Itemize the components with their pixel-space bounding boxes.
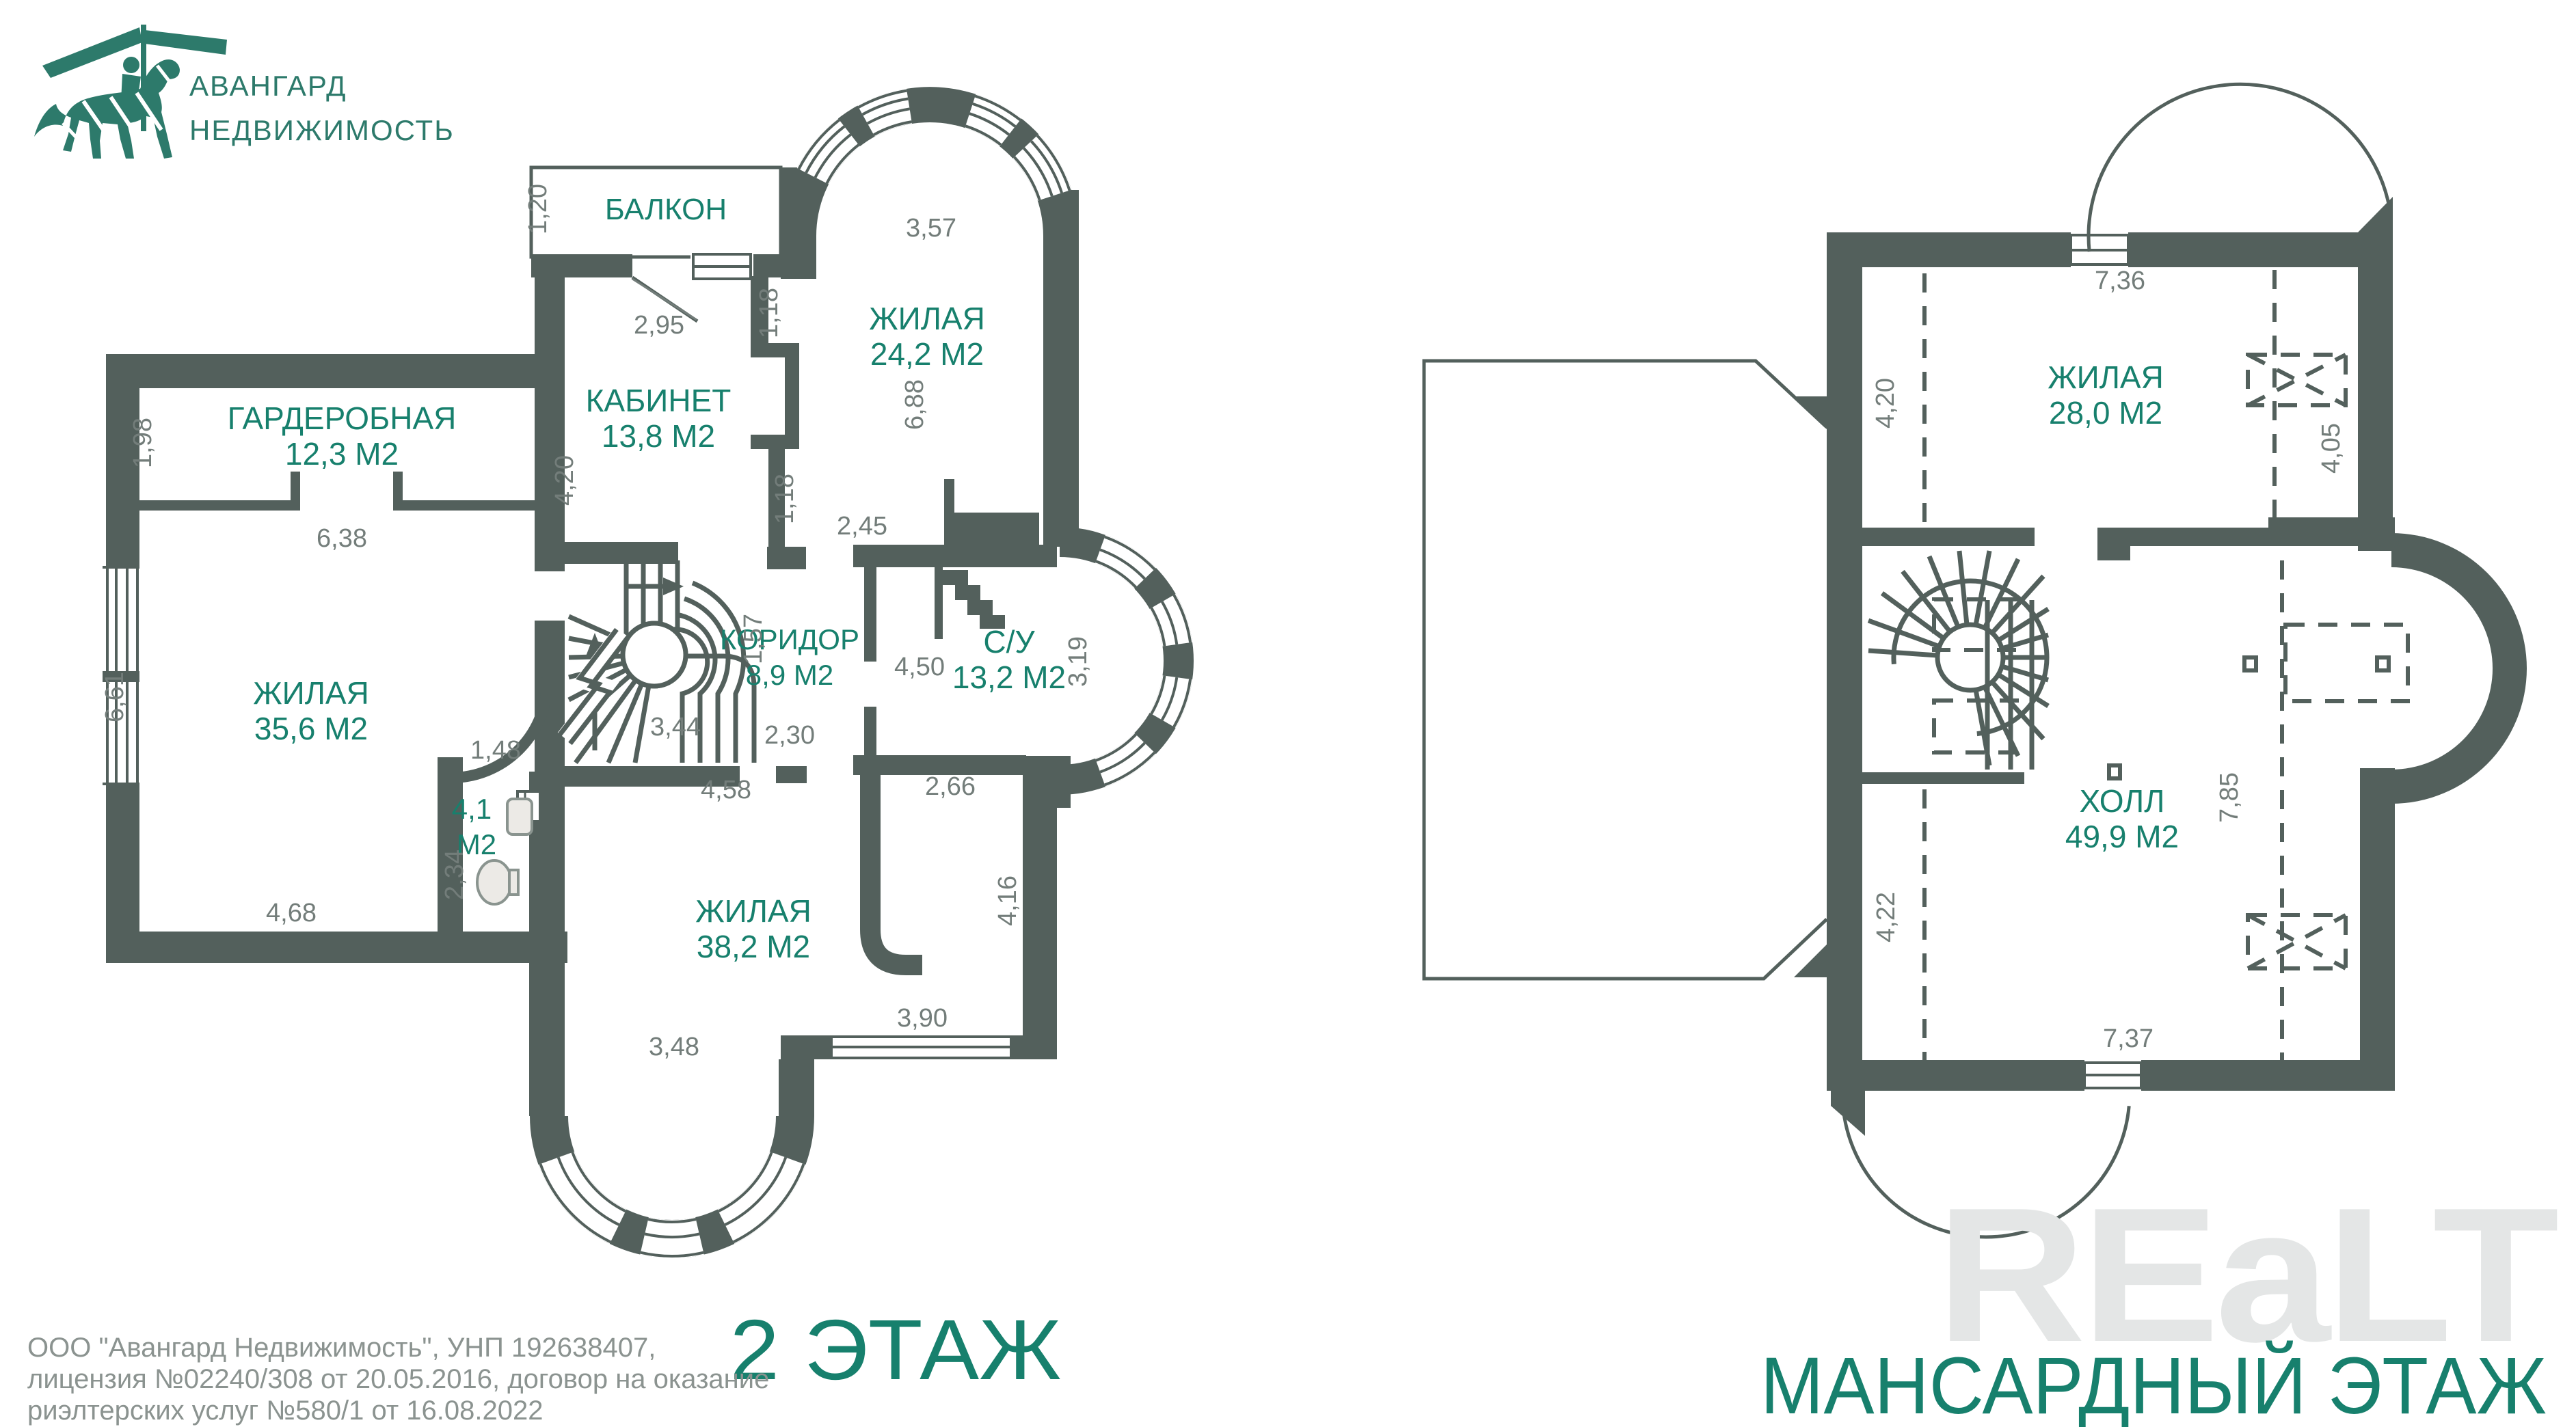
- svg-text:4,05: 4,05: [2317, 423, 2346, 474]
- svg-text:35,6 М2: 35,6 М2: [254, 711, 368, 746]
- svg-text:ЖИЛАЯ: ЖИЛАЯ: [253, 675, 369, 711]
- svg-text:МАНСАРДНЫЙ ЭТАЖ: МАНСАРДНЫЙ ЭТАЖ: [1760, 1340, 2547, 1427]
- svg-text:4,1: 4,1: [452, 793, 492, 825]
- svg-text:1,20: 1,20: [524, 184, 552, 234]
- svg-text:1,18: 1,18: [770, 474, 799, 524]
- svg-text:ЖИЛАЯ: ЖИЛАЯ: [869, 301, 985, 336]
- svg-text:С/У: С/У: [983, 624, 1035, 660]
- svg-text:4,68: 4,68: [266, 899, 317, 927]
- svg-text:3,48: 3,48: [649, 1033, 699, 1061]
- svg-text:ООО "Авангард Недвижимость", У: ООО "Авангард Недвижимость", УНП 1926384…: [27, 1333, 656, 1363]
- svg-text:ЖИЛАЯ: ЖИЛАЯ: [695, 893, 811, 929]
- svg-text:2,95: 2,95: [634, 311, 684, 340]
- svg-text:7,85: 7,85: [2215, 772, 2244, 823]
- svg-text:риэлтерских услуг №580/1 от 16: риэлтерских услуг №580/1 от 16.08.2022: [27, 1396, 544, 1426]
- svg-text:2,45: 2,45: [837, 512, 887, 541]
- svg-text:3,90: 3,90: [897, 1004, 948, 1033]
- svg-text:БАЛКОН: БАЛКОН: [605, 193, 727, 226]
- svg-text:2,66: 2,66: [925, 772, 976, 801]
- svg-text:49,9 М2: 49,9 М2: [2065, 819, 2179, 854]
- svg-text:НЕДВИЖИМОСТЬ: НЕДВИЖИМОСТЬ: [189, 114, 455, 146]
- svg-text:1,57: 1,57: [739, 614, 768, 664]
- svg-text:7,37: 7,37: [2103, 1024, 2154, 1053]
- svg-text:6,88: 6,88: [900, 379, 929, 430]
- svg-text:2,30: 2,30: [764, 721, 815, 750]
- svg-text:ГАРДЕРОБНАЯ: ГАРДЕРОБНАЯ: [228, 400, 457, 436]
- svg-text:ЖИЛАЯ: ЖИЛАЯ: [2048, 359, 2164, 395]
- svg-text:1,98: 1,98: [129, 418, 157, 468]
- svg-text:6,61: 6,61: [100, 672, 129, 722]
- svg-text:АВАНГАРД: АВАНГАРД: [189, 70, 347, 102]
- svg-text:4,20: 4,20: [550, 455, 579, 506]
- svg-text:4,16: 4,16: [993, 875, 1022, 926]
- svg-text:4,50: 4,50: [894, 653, 945, 681]
- svg-text:3,57: 3,57: [906, 214, 956, 243]
- svg-text:1,48: 1,48: [470, 736, 521, 765]
- svg-text:28,0 М2: 28,0 М2: [2049, 395, 2162, 431]
- svg-text:13,2 М2: 13,2 М2: [952, 660, 1066, 695]
- svg-text:4,58: 4,58: [701, 776, 751, 804]
- svg-text:24,2 М2: 24,2 М2: [870, 336, 984, 372]
- svg-text:4,22: 4,22: [1872, 892, 1901, 942]
- svg-text:2,34: 2,34: [440, 850, 469, 900]
- svg-text:6,38: 6,38: [317, 524, 367, 553]
- svg-text:ХОЛЛ: ХОЛЛ: [2080, 783, 2165, 819]
- svg-text:3,19: 3,19: [1064, 636, 1092, 687]
- svg-text:7,36: 7,36: [2095, 267, 2145, 295]
- svg-text:3,44: 3,44: [650, 713, 701, 742]
- svg-text:1,18: 1,18: [755, 288, 783, 338]
- svg-text:2 ЭТАЖ: 2 ЭТАЖ: [730, 1303, 1062, 1398]
- svg-text:4,20: 4,20: [1871, 378, 1900, 429]
- svg-text:12,3 М2: 12,3 М2: [285, 436, 399, 472]
- svg-text:лицензия №02240/308 от 20.05.2: лицензия №02240/308 от 20.05.2016, догов…: [27, 1364, 769, 1394]
- svg-text:13,8 М2: 13,8 М2: [602, 418, 715, 454]
- svg-text:КАБИНЕТ: КАБИНЕТ: [586, 383, 732, 418]
- svg-text:38,2 М2: 38,2 М2: [697, 929, 810, 964]
